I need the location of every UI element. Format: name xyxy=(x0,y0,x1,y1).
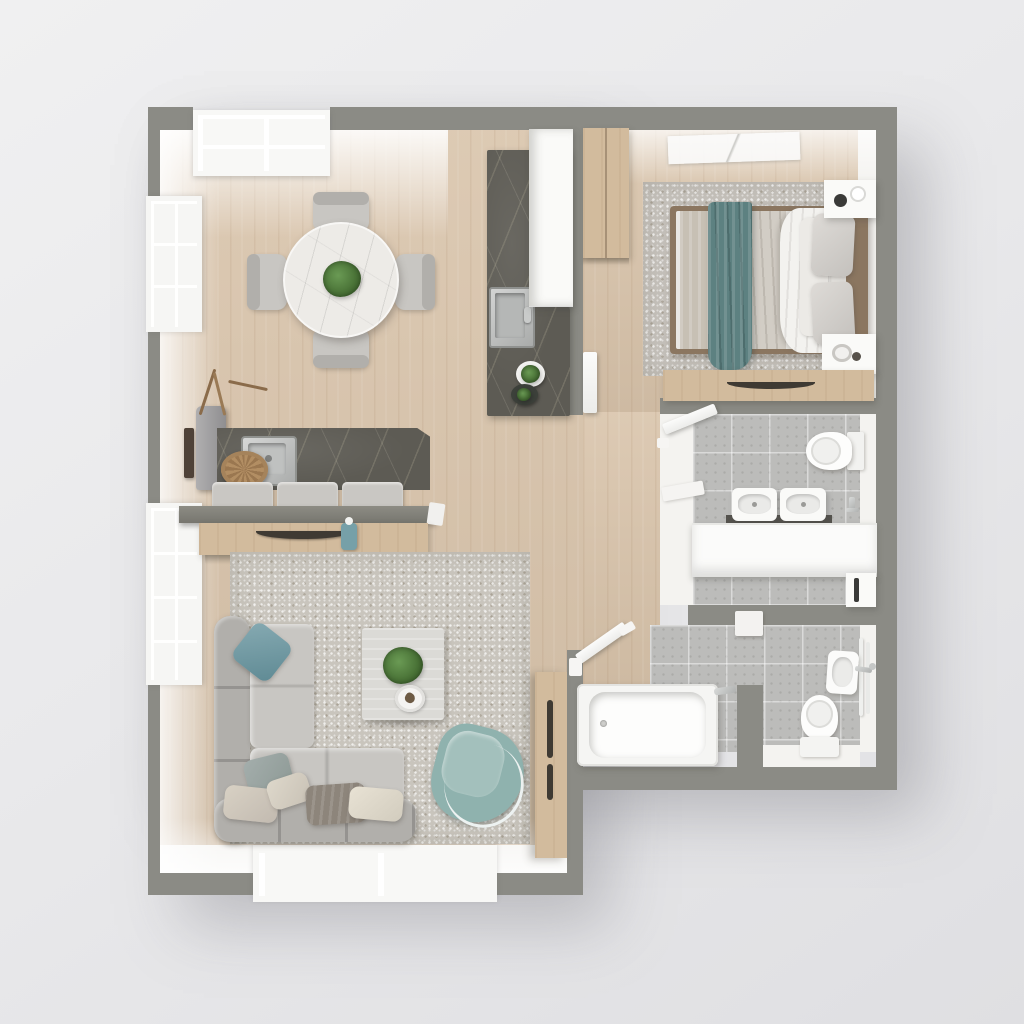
bath2-toilet-tank xyxy=(800,737,839,757)
bedroom-dresser xyxy=(663,370,874,401)
bath-main-basin-1 xyxy=(732,488,777,521)
kitchen-plant-dish-1 xyxy=(516,361,545,387)
bath-main-toilet-seat xyxy=(811,437,841,465)
sofa-pillow-cream xyxy=(348,786,405,823)
bay-window-bottom xyxy=(253,845,497,902)
wall-bottom-right-section xyxy=(583,767,897,790)
bath2-towel-rail-1 xyxy=(859,638,863,716)
bath2-towel-rail-2 xyxy=(866,642,870,714)
floor-plan-render xyxy=(0,0,1024,1024)
bath2-sink-faucet-handle xyxy=(869,663,876,670)
sideboard-shelf-edge xyxy=(179,506,435,523)
bay-window-top-panes xyxy=(198,115,325,171)
nightstand-south-decor-dot xyxy=(852,352,861,361)
bath2-toilet-seat xyxy=(806,700,833,728)
dining-chair-south-back xyxy=(313,355,369,368)
nightstand-north-decor-plate xyxy=(850,186,866,202)
living-cabinet-handle-1 xyxy=(547,700,553,758)
bathtub xyxy=(577,684,718,766)
dining-chair-east xyxy=(395,254,435,310)
nightstand-south-decor-ring xyxy=(832,344,852,362)
bath-main-basin-1-drain xyxy=(752,502,757,507)
living-cabinet-handle-2 xyxy=(547,764,553,800)
kitchen-sink-basin xyxy=(495,293,525,338)
sideboard-shelf-end-cap xyxy=(427,502,446,526)
bath2-divider-shelf xyxy=(735,611,763,636)
sideboard-bottle-cap xyxy=(345,517,353,525)
kitchen-plant-1 xyxy=(521,365,540,383)
bath-main-wall-faucet-arm xyxy=(846,508,859,512)
dining-chair-west xyxy=(247,254,287,310)
wall-bottom-left-b xyxy=(497,873,583,895)
bedroom-wardrobe-seam xyxy=(605,128,607,258)
dining-chair-north-back xyxy=(313,192,369,205)
coffee-table-tray-twig xyxy=(403,691,417,705)
kitchen-plant-dish-2 xyxy=(511,384,538,405)
bedroom-dresser-handle xyxy=(727,382,815,389)
sideboard-wall-sconce xyxy=(184,428,194,478)
kitchen-plant-2 xyxy=(517,388,531,401)
bath-main-vanity xyxy=(692,523,877,577)
bath2-door-stub-1 xyxy=(569,658,582,676)
bath2-wall-sink xyxy=(826,650,860,695)
coffee-table-tray xyxy=(395,685,425,712)
wall-bathroom-divider xyxy=(688,605,878,625)
sideboard-basin-drain-icon xyxy=(265,455,272,462)
wall-bottom-left-a xyxy=(148,873,253,895)
bedroom-wardrobe xyxy=(583,128,629,258)
bedroom-door-leaf xyxy=(583,352,597,413)
bath-main-door-stub xyxy=(657,438,669,448)
nightstand-south xyxy=(822,334,876,374)
bath2-wall-sink-bowl xyxy=(831,656,854,687)
bed-throw-teal xyxy=(708,202,752,370)
dining-chair-east-back xyxy=(422,254,435,310)
kitchen-tall-cabinet xyxy=(529,129,573,307)
window-left-upper xyxy=(146,196,202,332)
kitchen-faucet-icon xyxy=(524,307,531,323)
bath2-toilet-bowl xyxy=(801,695,838,739)
window-left-lower-panes xyxy=(151,508,197,680)
nightstand-north-decor-dark xyxy=(834,194,847,207)
bath-main-toilet-bowl xyxy=(806,432,852,470)
bath-main-basin-2-drain xyxy=(801,502,806,507)
bay-window-bottom-panes xyxy=(259,853,491,896)
wall-top xyxy=(330,107,897,130)
sideboard-teal-bottle xyxy=(341,523,357,550)
wall-bath-second-jog xyxy=(737,685,763,767)
bathtub-drain xyxy=(600,720,607,727)
bath-main-cabinet-handle xyxy=(854,578,859,602)
bedroom-wardrobe-shadow xyxy=(583,258,629,265)
wall-right xyxy=(876,107,897,790)
window-left-lower xyxy=(146,503,202,685)
bedroom-ceiling-vent xyxy=(668,132,801,165)
bath-main-storage-cabinet xyxy=(846,573,876,607)
dining-chair-west-back xyxy=(247,254,260,310)
bay-window-top xyxy=(193,110,330,176)
living-tall-cabinet xyxy=(535,672,567,858)
bed-pillow-1 xyxy=(810,213,855,277)
sideboard-drawers xyxy=(199,523,428,555)
nightstand-north xyxy=(824,180,876,218)
bath-main-basin-2 xyxy=(780,488,826,521)
window-left-upper-panes xyxy=(151,201,197,327)
